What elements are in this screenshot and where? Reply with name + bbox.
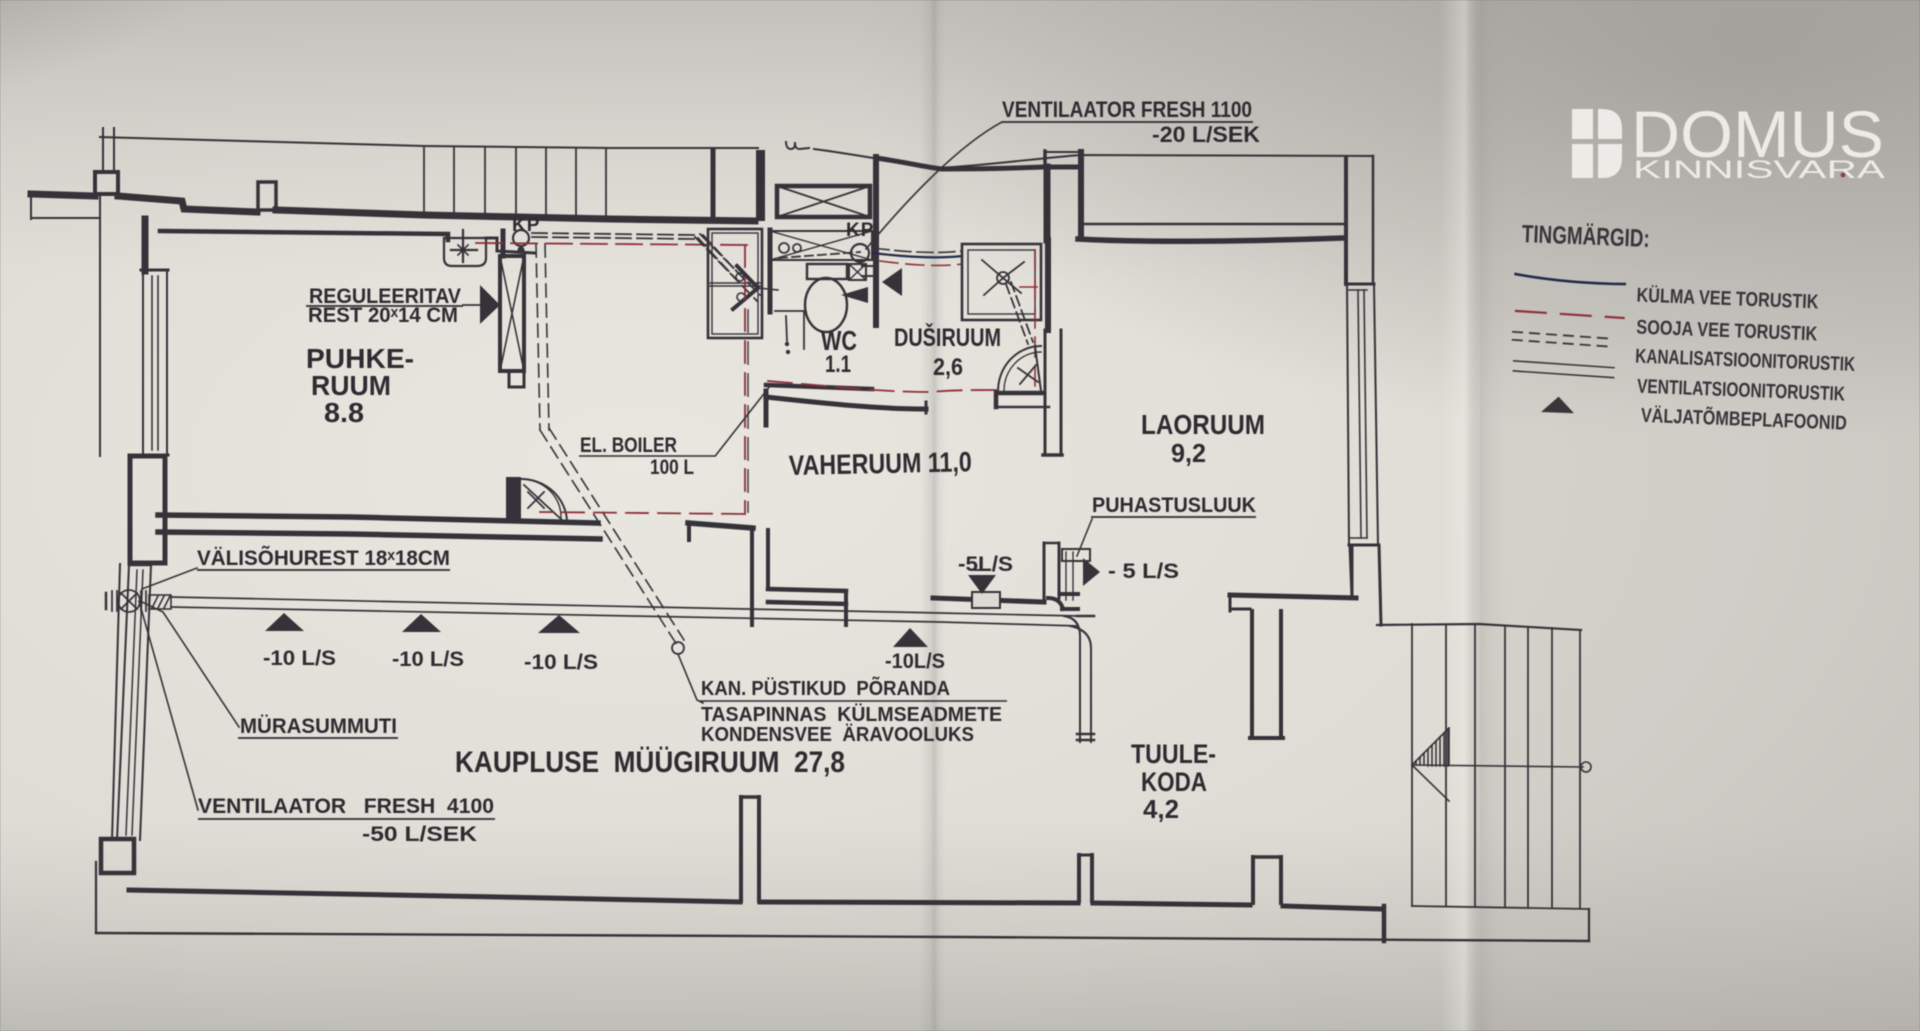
svg-text:KONDENSVEE ÄRAVOOLUKS: KONDENSVEE ÄRAVOOLUKS <box>701 723 974 746</box>
svg-text:KAUPLUSE MÜÜGIRUUM 27,8: KAUPLUSE MÜÜGIRUUM 27,8 <box>455 746 845 779</box>
svg-text:1.1: 1.1 <box>825 351 851 378</box>
svg-text:KINNISVARA: KINNISVARA <box>1633 156 1886 184</box>
svg-text:9,2: 9,2 <box>1171 438 1206 468</box>
svg-text:PUHASTUSLUUK: PUHASTUSLUUK <box>1092 494 1256 517</box>
svg-text:VAHERUUM 11,0: VAHERUUM 11,0 <box>788 446 972 481</box>
svg-text:-50 L/SEK: -50 L/SEK <box>362 823 477 846</box>
svg-text:8.8: 8.8 <box>324 397 364 428</box>
svg-text:TINGMÄRGID:: TINGMÄRGID: <box>1521 220 1650 253</box>
svg-text:VENTILAATOR FRESH 1100: VENTILAATOR FRESH 1100 <box>1002 97 1252 122</box>
svg-text:-10 L/S: -10 L/S <box>524 651 598 674</box>
svg-text:4,2: 4,2 <box>1143 794 1179 824</box>
svg-text:KP: KP <box>512 215 540 236</box>
svg-text:- 5 L/S: - 5 L/S <box>1108 560 1179 583</box>
svg-text:-20 L/SEK: -20 L/SEK <box>1152 122 1260 147</box>
svg-text:MÜRASUMMUTI: MÜRASUMMUTI <box>240 715 397 738</box>
svg-text:2,6: 2,6 <box>933 354 963 381</box>
svg-text:TASAPINNAS KÜLMSEADMETE: TASAPINNAS KÜLMSEADMETE <box>701 703 1002 726</box>
svg-text:-10 L/S: -10 L/S <box>392 648 464 671</box>
svg-text:EL. BOILER: EL. BOILER <box>580 434 677 457</box>
svg-text:VENTILAATOR FRESH 4100: VENTILAATOR FRESH 4100 <box>198 795 494 818</box>
svg-text:KAN. PÜSTIKUD PÕRANDA: KAN. PÜSTIKUD PÕRANDA <box>701 676 950 700</box>
svg-text:-10L/S: -10L/S <box>885 650 945 673</box>
svg-text:LAORUUM: LAORUUM <box>1141 409 1265 440</box>
svg-text:KP: KP <box>846 220 874 241</box>
svg-text:100 L: 100 L <box>650 456 694 479</box>
svg-text:REST 20ˣ14 CM: REST 20ˣ14 CM <box>308 304 458 327</box>
svg-text:DUŠIRUUM: DUŠIRUUM <box>894 322 1001 352</box>
svg-text:VÄLISÕHUREST 18ˣ18CM: VÄLISÕHUREST 18ˣ18CM <box>197 546 450 570</box>
svg-text:-10 L/S: -10 L/S <box>263 647 336 670</box>
svg-text:-5L/S: -5L/S <box>958 553 1013 576</box>
svg-text:KODA: KODA <box>1141 767 1207 797</box>
svg-text:TUULE-: TUULE- <box>1131 739 1216 769</box>
